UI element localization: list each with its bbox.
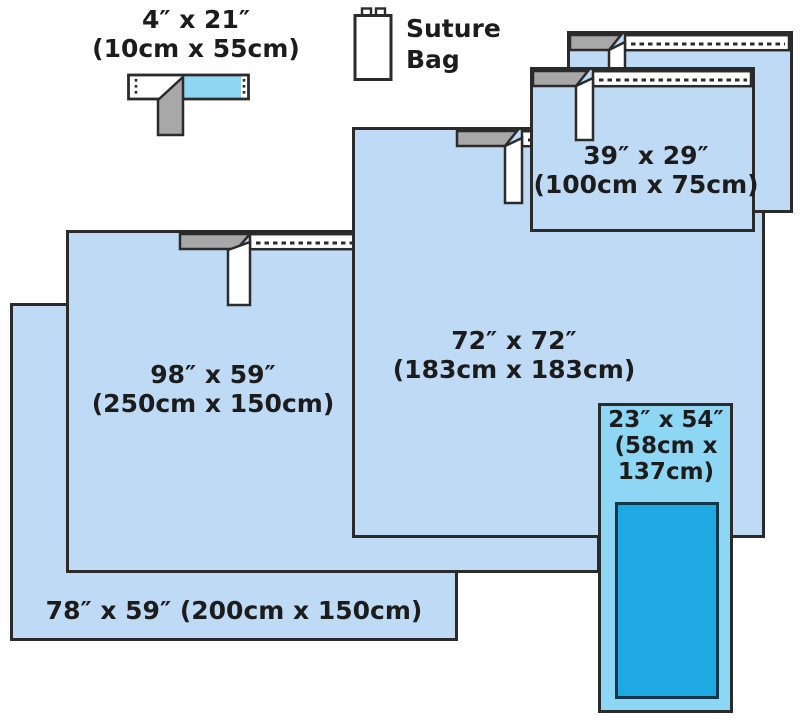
label-line: 98″ x 59″ (92, 360, 335, 389)
label-drape-78x59: 78″ x 59″ (200cm x 150cm) (46, 596, 423, 625)
tape-pull-flap (505, 138, 522, 203)
bag-body (355, 16, 391, 80)
tape-fold-corner (457, 131, 517, 146)
label-line: Bag (406, 44, 501, 75)
label-line: 137cm) (608, 459, 723, 485)
tape-fold-corner (180, 234, 250, 249)
label-line: (250cm x 150cm) (92, 389, 335, 418)
tape-pull-flap (576, 78, 593, 140)
label-line: (58cm x (608, 433, 723, 459)
label-line: Suture (406, 13, 501, 44)
label-drape-72x72: 72″ x 72″ (183cm x 183cm) (393, 326, 636, 384)
label-line: (100cm x 75cm) (533, 170, 758, 199)
label-tape-4x21: 4″ x 21″ (10cm x 55cm) (92, 5, 300, 63)
suture-bag-icon (351, 5, 397, 87)
label-drape-23x54: 23″ x 54″ (58cm x 137cm) (608, 407, 723, 485)
label-line: 78″ x 59″ (200cm x 150cm) (46, 596, 423, 625)
adhesive-strip (625, 35, 789, 50)
tape-pull-flap (228, 242, 250, 305)
label-suture-bag: Suture Bag (406, 13, 501, 75)
tape-strip-blue-segment (184, 77, 241, 98)
drape-23x54-inner-panel (615, 502, 719, 699)
label-line: 4″ x 21″ (92, 5, 300, 34)
label-line: (183cm x 183cm) (393, 355, 636, 384)
label-line: 39″ x 29″ (533, 141, 758, 170)
label-drape-98x59: 98″ x 59″ (250cm x 150cm) (92, 360, 335, 418)
label-line: 72″ x 72″ (393, 326, 636, 355)
surgical-drape-pack-diagram: 4″ x 21″ (10cm x 55cm) Suture Bag 39″ x … (0, 0, 800, 723)
label-drape-39x29: 39″ x 29″ (100cm x 75cm) (533, 141, 758, 199)
label-line: 23″ x 54″ (608, 407, 723, 433)
tape-fold-corner (570, 35, 621, 50)
tape-strip-4x21-icon (127, 72, 255, 142)
tape-fold-corner (533, 71, 588, 86)
adhesive-strip (593, 71, 751, 86)
label-line: (10cm x 55cm) (92, 34, 300, 63)
